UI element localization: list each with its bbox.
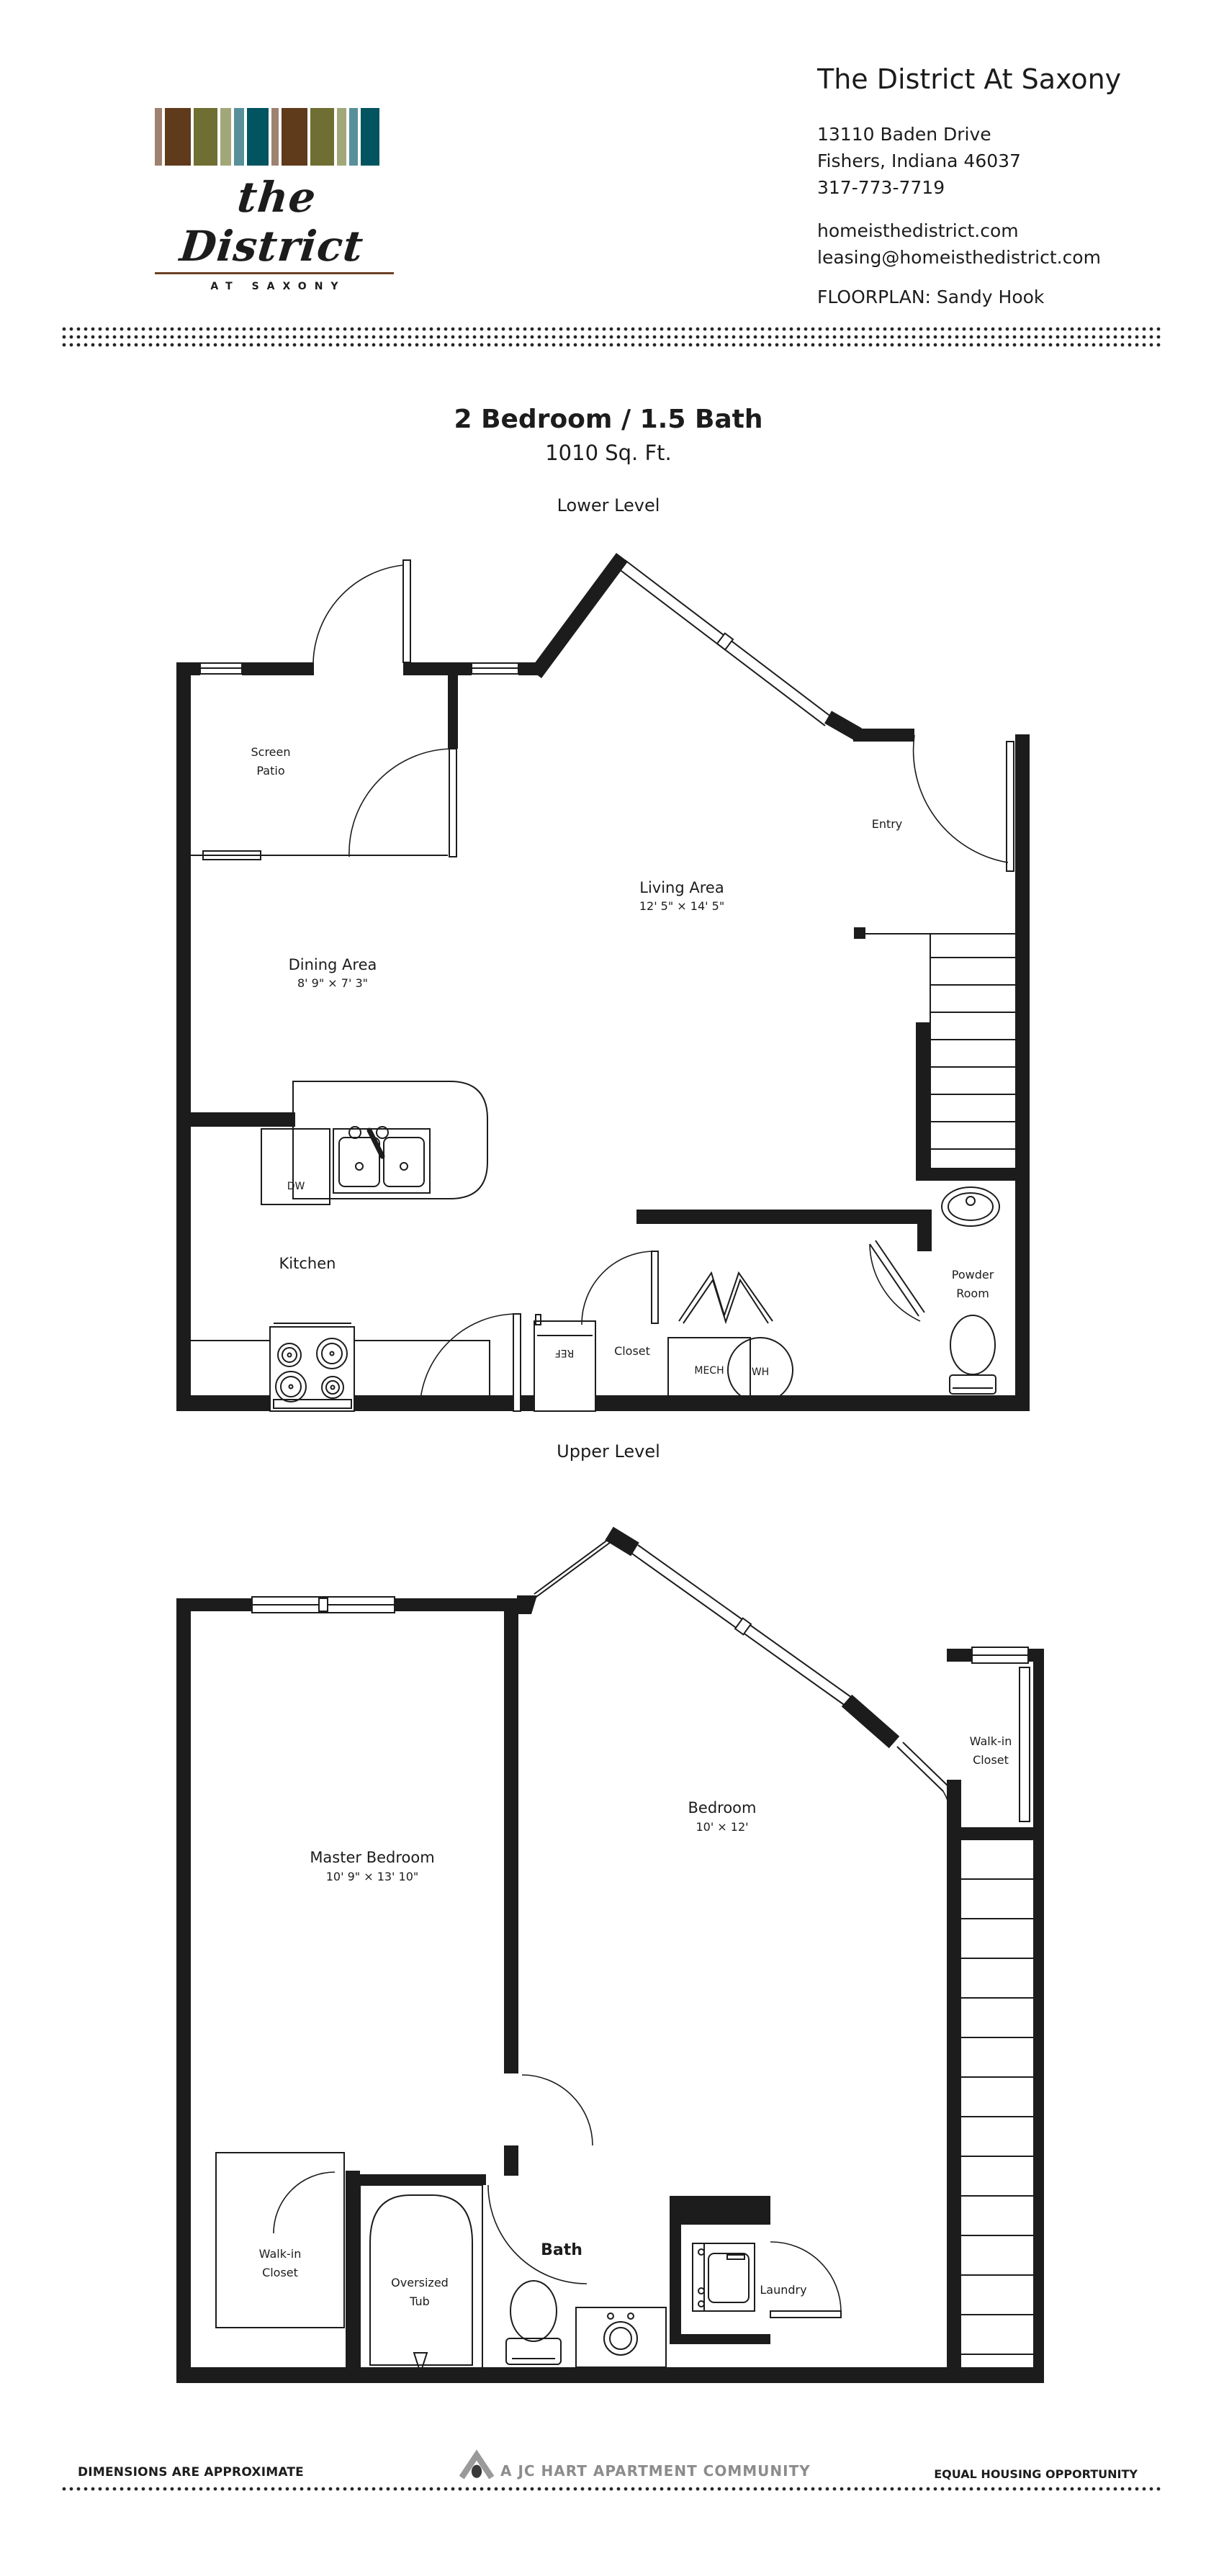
room-label-powder-room: Powder bbox=[952, 1268, 994, 1282]
room-dims-bedroom: 10' × 12' bbox=[696, 1820, 748, 1834]
door-leaf bbox=[449, 749, 456, 857]
wall bbox=[360, 2174, 486, 2185]
window bbox=[632, 1545, 854, 1708]
room-label-powder-room: Room bbox=[956, 1287, 989, 1300]
phone-number: 317-773-7719 bbox=[817, 174, 1021, 201]
room-label-screen-patio: Screen bbox=[251, 745, 290, 759]
label-dishwasher: DW bbox=[287, 1181, 305, 1192]
kitchen-counter bbox=[293, 1081, 487, 1199]
dimensions-note: DIMENSIONS ARE APPROXIMATE bbox=[78, 2465, 304, 2480]
wall bbox=[187, 662, 200, 675]
door-arc bbox=[313, 565, 403, 662]
room-label-oversized-tub: Tub bbox=[409, 2294, 430, 2308]
wall bbox=[395, 1598, 518, 1611]
room-label-wh: WH bbox=[752, 1366, 769, 1378]
window bbox=[972, 1647, 1028, 1663]
door-arc bbox=[582, 1251, 654, 1325]
room-label-walkin-closet-lower: Walk-in bbox=[259, 2247, 302, 2261]
bifold-doors bbox=[679, 1273, 773, 1323]
header-dotted-divider bbox=[61, 325, 1163, 349]
wall bbox=[403, 662, 472, 675]
wall bbox=[947, 1827, 1044, 1840]
address-line1: 13110 Baden Drive bbox=[817, 121, 1021, 148]
dishwasher bbox=[261, 1129, 330, 1204]
equal-housing-note: EQUAL HOUSING OPPORTUNITY bbox=[934, 2467, 1138, 2481]
powder-sink bbox=[942, 1187, 999, 1226]
wall bbox=[242, 662, 314, 675]
door-arc bbox=[488, 2185, 587, 2284]
door-arc bbox=[914, 735, 1008, 863]
room-label-oversized-tub: Oversized bbox=[391, 2276, 449, 2289]
wall bbox=[536, 557, 622, 674]
door-arc bbox=[522, 2075, 593, 2145]
lower-level-label: Lower Level bbox=[0, 495, 1217, 515]
wall bbox=[847, 1701, 894, 1742]
jc-hart-house-icon bbox=[458, 2446, 495, 2485]
room-label-living-area: Living Area bbox=[639, 879, 724, 896]
wall bbox=[346, 2171, 360, 2382]
wall bbox=[504, 1611, 518, 2073]
door-leaf bbox=[897, 1747, 943, 1791]
room-dims-living-area: 12' 5" × 14' 5" bbox=[639, 899, 724, 913]
footer-dotted-divider bbox=[61, 2485, 1163, 2493]
lower-level-floorplan: Entry Screen Patio Living Area 12' 5" × … bbox=[166, 526, 1044, 1426]
room-dims-dining-area: 8' 9" × 7' 3" bbox=[297, 976, 368, 990]
room-label-kitchen: Kitchen bbox=[279, 1255, 336, 1272]
room-label-bath: Bath bbox=[541, 2241, 582, 2259]
toilet-icon bbox=[950, 1315, 996, 1394]
wall bbox=[504, 2145, 518, 2176]
wall bbox=[947, 1840, 961, 2382]
vanity-sink bbox=[576, 2307, 666, 2367]
room-label-master-bedroom: Master Bedroom bbox=[310, 1849, 434, 1866]
wall bbox=[636, 1210, 917, 1224]
room-label-dining-area: Dining Area bbox=[289, 956, 377, 973]
wall bbox=[176, 1598, 191, 2383]
room-label-mech: MECH bbox=[694, 1365, 724, 1377]
upper-level-floorplan: Walk-in Closet Master Bedroom 10' 9" × 1… bbox=[166, 1505, 1044, 2405]
label-refrigerator: REF bbox=[555, 1347, 575, 1359]
room-label-laundry: Laundry bbox=[760, 2283, 806, 2297]
wall bbox=[916, 1022, 930, 1168]
wall bbox=[947, 1649, 972, 1662]
room-label-screen-patio: Patio bbox=[256, 764, 284, 778]
wall bbox=[1015, 734, 1030, 1411]
plan-title: 2 Bedroom / 1.5 Bath bbox=[0, 405, 1217, 434]
logo-stripes bbox=[155, 108, 394, 166]
wall bbox=[853, 729, 914, 742]
room-label-entry: Entry bbox=[872, 817, 903, 831]
wall bbox=[670, 2196, 770, 2225]
wall bbox=[609, 1534, 635, 1549]
room-label-closet: Closet bbox=[614, 1344, 650, 1358]
door-leaf bbox=[513, 1314, 521, 1411]
wall bbox=[916, 1168, 1030, 1181]
wall bbox=[670, 2334, 770, 2344]
wall bbox=[1033, 1649, 1044, 2383]
room-label-walkin-closet-upper: Closet bbox=[973, 1753, 1009, 1767]
door-arc bbox=[274, 2172, 335, 2233]
logo-sub-text: AT SAXONY bbox=[155, 281, 394, 292]
stairs bbox=[961, 1879, 1033, 2354]
logo-script-text: the District bbox=[150, 173, 399, 271]
refrigerator bbox=[534, 1315, 595, 1411]
door-leaf bbox=[403, 560, 410, 662]
wall bbox=[670, 2225, 681, 2334]
property-address: 13110 Baden Drive Fishers, Indiana 46037… bbox=[817, 121, 1021, 201]
walkin-closet-lower bbox=[216, 2153, 344, 2328]
community-credit: A JC HART APARTMENT COMMUNITY bbox=[500, 2462, 811, 2480]
door-arc bbox=[349, 749, 453, 857]
logo-rule bbox=[155, 272, 394, 274]
room-dims-master-bedroom: 10' 9" × 13' 10" bbox=[326, 1870, 419, 1883]
wall bbox=[448, 673, 458, 749]
wall bbox=[176, 662, 191, 1411]
address-line2: Fishers, Indiana 46037 bbox=[817, 148, 1021, 174]
closet-shelf bbox=[1020, 1667, 1030, 1821]
door-leaf bbox=[770, 2311, 841, 2318]
stove bbox=[270, 1323, 354, 1411]
door-leaf bbox=[876, 1240, 924, 1312]
property-contacts: homeisthedistrict.com leasing@homeisthed… bbox=[817, 217, 1101, 271]
wall bbox=[917, 1210, 932, 1251]
window bbox=[618, 560, 832, 726]
window bbox=[252, 1597, 395, 1613]
wall bbox=[176, 2367, 1044, 2383]
floorplan-name: FLOORPLAN: Sandy Hook bbox=[817, 287, 1044, 307]
door-leaf bbox=[903, 1742, 949, 1787]
wall bbox=[191, 1112, 295, 1127]
door-leaf bbox=[652, 1251, 658, 1323]
washer-dryer bbox=[693, 2243, 755, 2311]
window bbox=[528, 1534, 616, 1603]
website-url: homeisthedistrict.com bbox=[817, 217, 1101, 244]
upper-level-label: Upper Level bbox=[0, 1441, 1217, 1462]
leasing-email: leasing@homeisthedistrict.com bbox=[817, 244, 1101, 271]
stairs bbox=[854, 927, 1015, 1172]
wall bbox=[187, 1598, 252, 1611]
door-arc bbox=[770, 2242, 841, 2312]
wall bbox=[1028, 1649, 1044, 1662]
room-label-walkin-closet-upper: Walk-in bbox=[970, 1734, 1012, 1748]
toilet-icon bbox=[506, 2281, 561, 2364]
door-leaf bbox=[870, 1244, 919, 1316]
door-leaf bbox=[1007, 742, 1014, 871]
property-name: The District At Saxony bbox=[817, 63, 1121, 95]
property-logo: the District AT SAXONY bbox=[155, 108, 394, 292]
room-label-bedroom: Bedroom bbox=[688, 1799, 757, 1816]
plan-sqft: 1010 Sq. Ft. bbox=[0, 441, 1217, 465]
kitchen-sink bbox=[333, 1127, 430, 1193]
room-label-walkin-closet-lower: Closet bbox=[262, 2266, 298, 2279]
